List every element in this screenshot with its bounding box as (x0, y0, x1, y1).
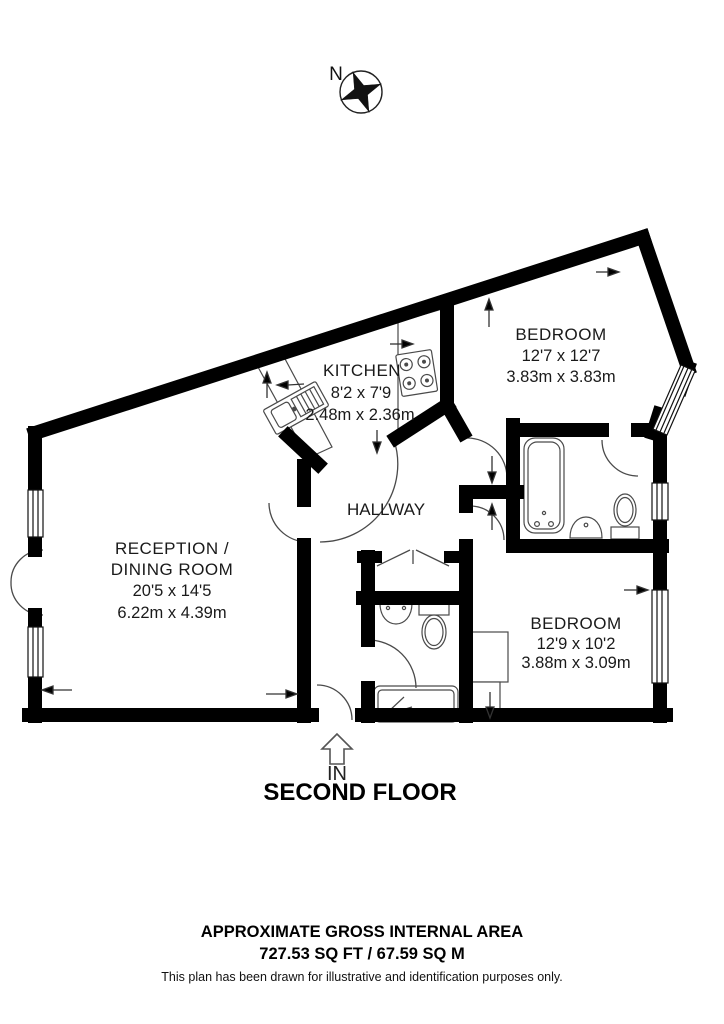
label-reception: RECEPTION / DINING ROOM 20'5 x 14'5 6.22… (111, 539, 234, 622)
bedroom2-name: BEDROOM (530, 614, 621, 633)
floorplan-page: N (0, 0, 724, 1024)
reception-name-line2: DINING ROOM (111, 560, 234, 579)
bedroom2-wardrobes (469, 632, 508, 718)
window-reception-bottom (28, 627, 43, 677)
reception-dims-ft: 20'5 x 14'5 (133, 582, 212, 600)
bedroom2-dims-m: 3.88m x 3.09m (521, 654, 630, 672)
bathroom-sink (570, 517, 602, 538)
window-bedroom2 (652, 590, 668, 683)
hallway-name: HALLWAY (347, 500, 425, 519)
reception-name-line1: RECEPTION / (115, 539, 229, 558)
reception-door-arc (269, 503, 308, 542)
closet-bifold-doors (377, 550, 449, 566)
shower-room-fixtures (374, 603, 458, 722)
floorplan-canvas: N (0, 0, 724, 1024)
window-bedroom1-angled (653, 365, 695, 435)
bedroom1-door-arc (467, 438, 507, 478)
bedroom1-dims-ft: 12'7 x 12'7 (522, 347, 601, 365)
compass-icon: N (329, 63, 390, 120)
kitchen-hob (396, 349, 438, 396)
entrance-door-arc (317, 685, 352, 720)
bedroom1-name: BEDROOM (515, 325, 606, 344)
kitchen-name: KITCHEN (323, 361, 401, 380)
label-bedroom2: BEDROOM 12'9 x 10'2 3.88m x 3.09m (521, 614, 630, 672)
compass-north-label: N (329, 64, 343, 85)
kitchen-dims-m: 2.48m x 2.36m (305, 406, 414, 424)
shower-room-toilet (419, 603, 449, 649)
entrance-arrow-icon (322, 734, 352, 764)
shower-room-door-arc (368, 640, 416, 688)
bedroom2-dims-ft: 12'9 x 10'2 (537, 635, 616, 653)
footer-disclaimer: This plan has been drawn for illustrativ… (161, 970, 562, 984)
shower-room-sink (380, 603, 412, 624)
kitchen-door-arc (320, 440, 398, 542)
bathroom-fixtures (524, 438, 639, 539)
window-reception-top (28, 490, 43, 537)
label-bedroom1: BEDROOM 12'7 x 12'7 3.83m x 3.83m (506, 325, 615, 386)
reception-dims-m: 6.22m x 4.39m (117, 604, 226, 622)
bathroom-door-arc (602, 440, 638, 476)
bathroom-toilet (611, 494, 639, 539)
footer-area-value: 727.53 SQ FT / 67.59 SQ M (259, 945, 464, 963)
bedroom1-dims-m: 3.83m x 3.83m (506, 368, 615, 386)
kitchen-dims-ft: 8'2 x 7'9 (331, 384, 391, 402)
footer-area-heading: APPROXIMATE GROSS INTERNAL AREA (201, 923, 523, 941)
window-bathroom (652, 483, 668, 520)
label-hallway: HALLWAY (347, 500, 425, 519)
bedroom2-door-arc (470, 506, 504, 540)
floor-title: SECOND FLOOR (263, 779, 456, 806)
